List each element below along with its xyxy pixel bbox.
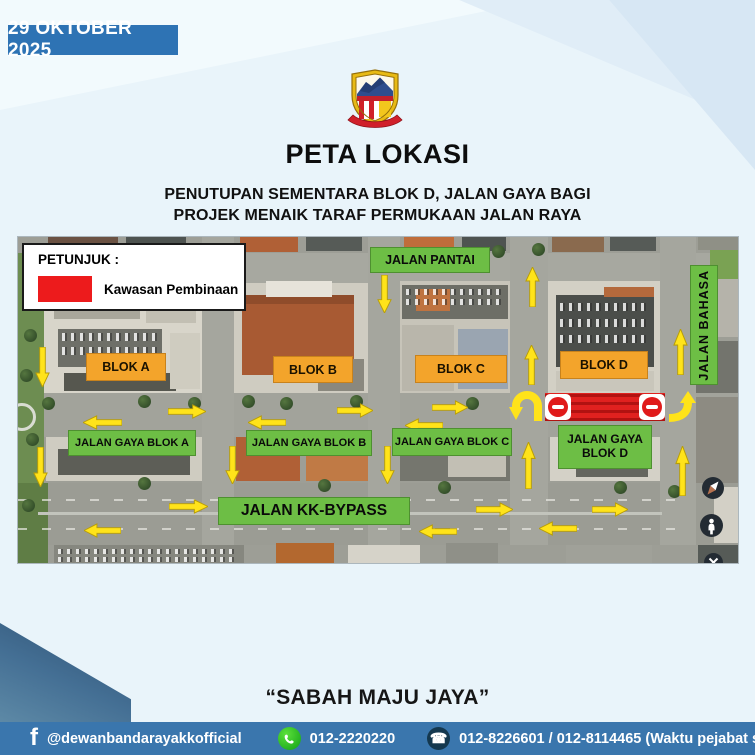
compass-icon: [702, 477, 724, 499]
poster: 29 OKTOBER 2025 PETA LOKASI PENUTUPAN SE…: [0, 0, 755, 755]
pegman-icon: [700, 514, 723, 537]
block-label: BLOK B: [273, 356, 353, 383]
location-map: PETUNJUK : Kawasan Pembinaan JALAN PANTA…: [18, 237, 738, 563]
road-label: JALAN GAYA BLOK D: [558, 425, 652, 469]
map-legend: PETUNJUK : Kawasan Pembinaan: [22, 243, 246, 311]
traffic-arrow-right: [432, 400, 468, 415]
subtitle: PENUTUPAN SEMENTARA BLOK D, JALAN GAYA B…: [0, 185, 755, 227]
block-label: BLOK C: [415, 355, 507, 383]
traffic-arrow-up: [524, 345, 539, 385]
date-banner: 29 OKTOBER 2025: [8, 25, 178, 55]
traffic-arrow-up: [521, 442, 536, 489]
road-label: JALAN GAYA BLOK C: [392, 428, 512, 456]
facebook-handle: @dewanbandarayakkofficial: [47, 731, 242, 747]
subtitle-line2: PROJEK MENAIK TARAF PERMUKAAN JALAN RAYA: [0, 206, 755, 227]
block-label: BLOK D: [560, 351, 648, 379]
construction-area-swatch: [38, 276, 92, 302]
road-label: JALAN PANTAI: [370, 247, 490, 273]
facebook-contact: f @dewanbandarayakkofficial: [0, 725, 242, 753]
footer-bar: f @dewanbandarayakkofficial 012-2220220 …: [0, 722, 755, 755]
road-label: JALAN GAYA BLOK B: [246, 430, 372, 456]
dbkk-crest-logo: [347, 69, 403, 129]
traffic-arrow-turn-up: [667, 390, 697, 423]
whatsapp-number: 012-2220220: [310, 731, 395, 747]
map-control-icon: [704, 553, 723, 563]
traffic-arrow-left: [83, 415, 122, 430]
traffic-arrow-left: [84, 523, 121, 538]
no-entry-icon: [639, 394, 665, 420]
traffic-arrow-up: [675, 446, 690, 496]
traffic-arrow-down: [225, 446, 240, 484]
traffic-arrow-down: [35, 347, 50, 387]
traffic-arrow-up: [673, 329, 688, 375]
no-entry-icon: [545, 394, 571, 420]
traffic-arrow-left: [248, 415, 286, 430]
traffic-arrow-up: [525, 267, 540, 307]
whatsapp-contact: 012-2220220: [242, 727, 395, 750]
traffic-arrow-right: [476, 502, 513, 517]
phone-numbers: 012-8226601 / 012-8114465 (Waktu pejabat…: [459, 731, 755, 747]
traffic-arrow-right: [337, 403, 373, 418]
slogan: “SABAH MAJU JAYA”: [0, 686, 755, 710]
road-label: JALAN GAYA BLOK A: [68, 430, 196, 456]
traffic-arrow-right: [169, 499, 208, 514]
traffic-arrow-right: [168, 404, 206, 419]
traffic-arrow-down: [33, 447, 48, 487]
traffic-arrow-left: [539, 521, 577, 536]
road-label: JALAN BAHASA: [690, 265, 718, 385]
legend-label: Kawasan Pembinaan: [104, 282, 238, 297]
road-label: JALAN KK-BYPASS: [218, 497, 410, 525]
legend-heading: PETUNJUK :: [38, 252, 119, 267]
subtitle-line1: PENUTUPAN SEMENTARA BLOK D, JALAN GAYA B…: [0, 185, 755, 206]
phone-contact: ☎ 012-8226601 / 012-8114465 (Waktu pejab…: [395, 727, 755, 750]
block-label: BLOK A: [86, 353, 166, 381]
whatsapp-icon: [278, 727, 301, 750]
facebook-icon: f: [30, 724, 38, 752]
phone-icon: ☎: [427, 727, 450, 750]
page-title: PETA LOKASI: [0, 139, 755, 170]
traffic-arrow-down: [377, 275, 392, 313]
traffic-arrow-right: [592, 502, 628, 517]
traffic-arrow-uturn-down: [508, 390, 544, 423]
traffic-arrow-left: [419, 524, 457, 539]
